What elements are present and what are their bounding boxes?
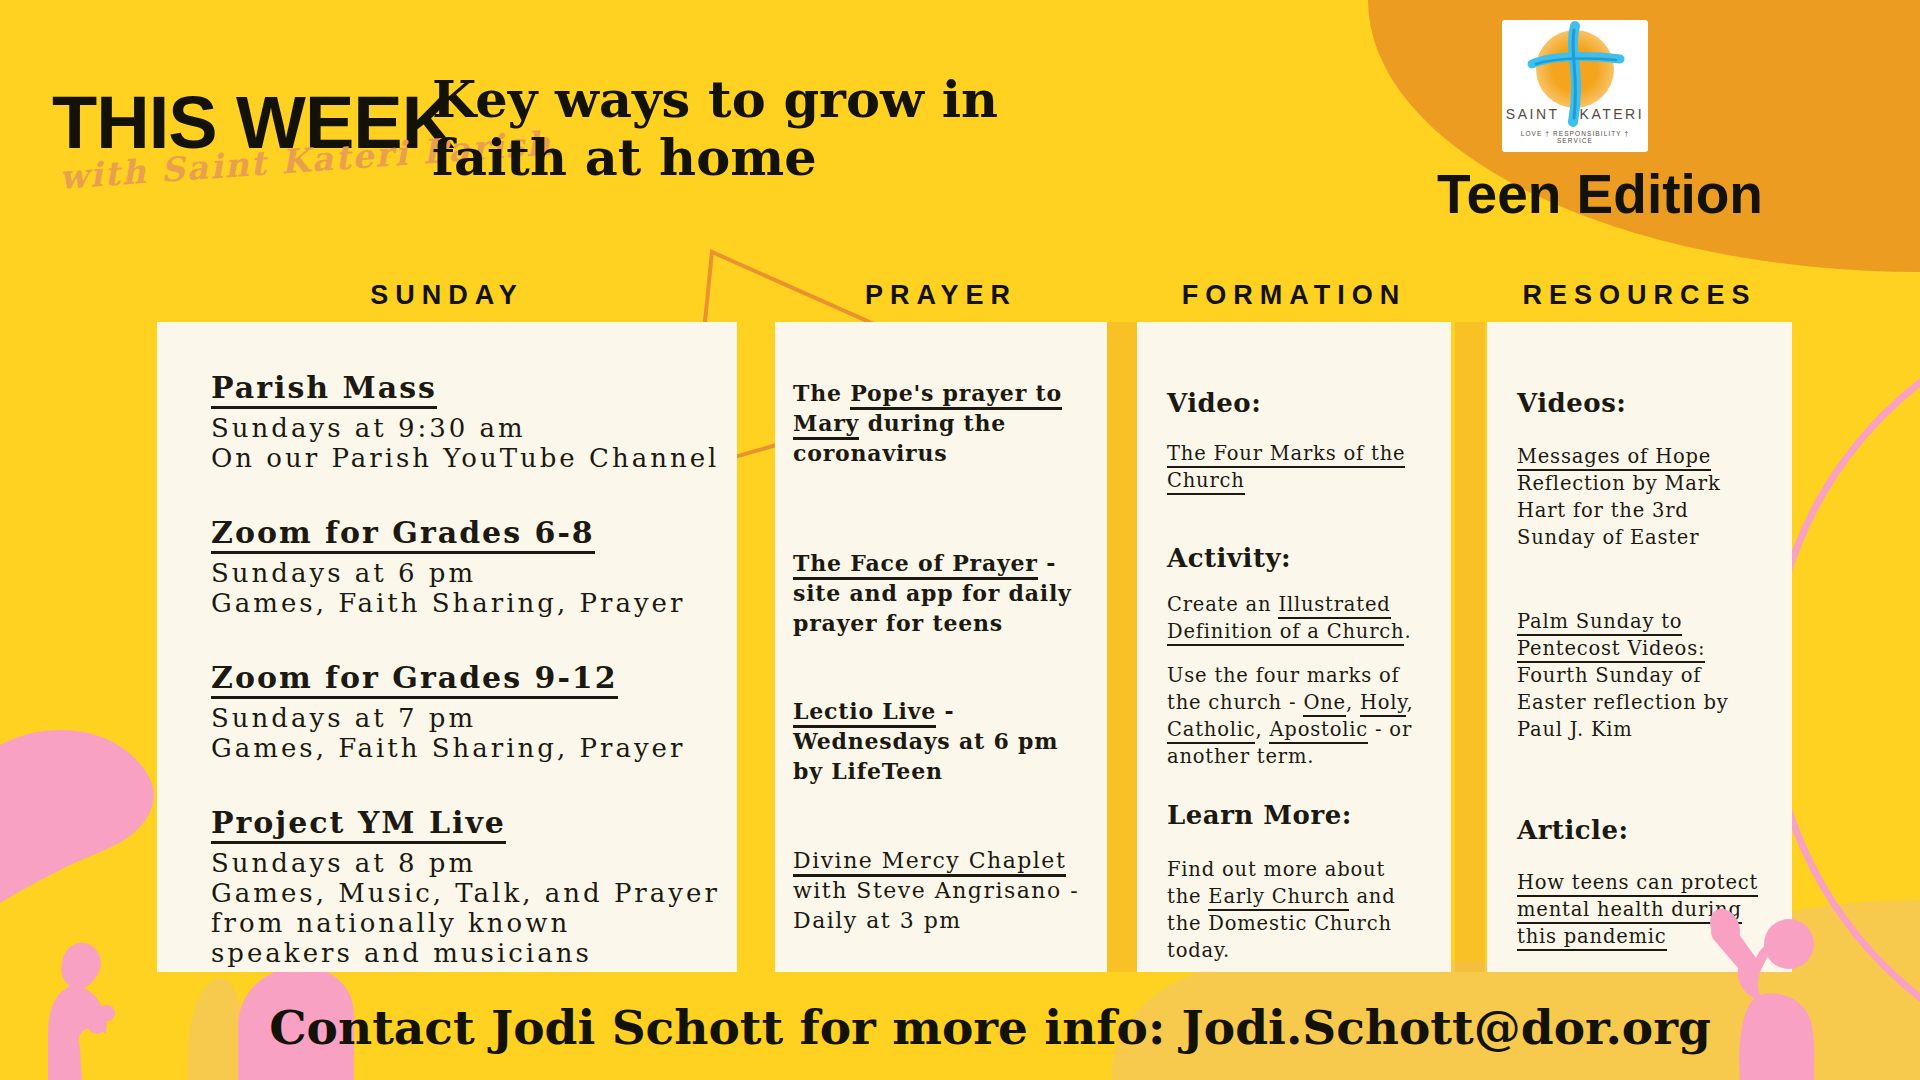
logo-name-right: KATERI [1580,106,1645,122]
link-underlined-text[interactable]: Messages of Hope [1517,445,1711,471]
schedule-item-title: Parish Mass [211,370,707,406]
link-underlined-text[interactable]: One [1303,691,1346,717]
link-underlined-text[interactable]: Divine Mercy Chaplet [793,848,1066,877]
parish-logo: SAINT KATERI LOVE † RESPONSIBILITY † SER… [1502,20,1648,152]
schedule-item: Zoom for Grades 9-12 Sundays at 7 pm Gam… [211,660,707,763]
schedule-item: Parish Mass Sundays at 9:30 am On our Pa… [211,370,707,473]
section-heading: Activity: [1167,541,1433,575]
plain-text: Create an [1167,593,1278,616]
plain-text: Reflection by Mark Hart for the 3rd Sund… [1517,472,1721,549]
logo-motto: LOVE † RESPONSIBILITY † SERVICE [1502,130,1648,144]
link-underlined-text[interactable]: Zoom for Grades 6-8 [211,515,595,554]
schedule-item: Project YM Live Sundays at 8 pm Games, M… [211,805,707,968]
formation-item: Find out more about the Early Church and… [1167,856,1433,964]
plain-text: with Steve Angrisano - Daily at 3 pm [793,878,1079,933]
plain-text: . [1404,620,1411,643]
plain-text: The [793,380,850,406]
link-underlined-text[interactable]: Zoom for Grades 9-12 [211,660,618,699]
link-underlined-text[interactable]: Lectio Live [793,698,936,728]
column-header-formation: FORMATION [1137,280,1451,311]
link-underlined-text[interactable]: Project YM Live [211,805,506,844]
schedule-item: Zoom for Grades 6-8 Sundays at 6 pm Game… [211,515,707,618]
link-underlined-text[interactable]: The Face of Prayer [793,550,1038,580]
column-header-prayer: PRAYER [775,280,1107,311]
schedule-item-details: Sundays at 6 pm Games, Faith Sharing, Pr… [211,558,707,618]
link-underlined-text[interactable]: The Four Marks of the Church [1167,442,1405,495]
section-heading: Learn More: [1167,798,1433,832]
link-underlined-text[interactable]: Apostolic [1269,718,1367,744]
prayer-item: Lectio Live - Wednesdays at 6 pm by Life… [793,696,1089,786]
section-heading: Video: [1167,386,1433,420]
resource-item: Palm Sunday to Pentecost Videos: Fourth … [1517,608,1776,743]
formation-item: Create an Illustrated Definition of a Ch… [1167,591,1433,645]
prayer-card: The Pope's prayer to Mary during the cor… [775,322,1107,972]
formation-item: The Four Marks of the Church [1167,440,1433,494]
plain-text: , [1255,718,1269,741]
schedule-item-title: Project YM Live [211,805,707,841]
pink-wave-band [0,730,154,903]
plain-text: Fourth Sunday of Easter reflection by Pa… [1517,664,1729,741]
plain-text: , [1346,691,1360,714]
link-underlined-text[interactable]: Holy [1360,691,1407,717]
column-header-resources: RESOURCES [1487,280,1792,311]
contact-footer: Contact Jodi Schott for more info: Jodi.… [30,1000,1920,1055]
resources-card: Videos: Messages of Hope Reflection by M… [1487,322,1792,972]
column-header-sunday: SUNDAY [157,280,737,311]
link-underlined-text[interactable]: Palm Sunday to Pentecost Videos: [1517,610,1705,663]
schedule-item-title: Zoom for Grades 9-12 [211,660,707,696]
section-heading: Videos: [1517,386,1776,420]
edition-label: Teen Edition [1400,162,1800,226]
sunday-card: Parish Mass Sundays at 9:30 am On our Pa… [157,322,737,972]
tagline: Key ways to grow in faith at home [432,70,998,186]
resource-item: Messages of Hope Reflection by Mark Hart… [1517,443,1776,551]
formation-item: Use the four marks of the church - One, … [1167,662,1433,770]
plain-text: , [1406,691,1413,714]
schedule-item-details: Sundays at 8 pm Games, Music, Talk, and … [211,848,707,968]
prayer-item: The Face of Prayer - site and app for da… [793,548,1089,638]
link-underlined-text[interactable]: Catholic [1167,718,1255,744]
prayer-item: Divine Mercy Chaplet with Steve Angrisan… [793,846,1089,936]
logo-wordmark: SAINT KATERI [1502,106,1648,122]
flyer-page: THIS WEEK with Saint Kateri Parish Key w… [0,0,1920,1080]
link-underlined-text[interactable]: Early Church [1208,885,1349,911]
section-heading: Article: [1517,813,1776,847]
schedule-item-details: Sundays at 7 pm Games, Faith Sharing, Pr… [211,703,707,763]
schedule-item-title: Zoom for Grades 6-8 [211,515,707,551]
logo-name-left: SAINT [1506,106,1560,122]
prayer-item: The Pope's prayer to Mary during the cor… [793,378,1089,468]
link-underlined-text[interactable]: Parish Mass [211,370,437,409]
schedule-item-details: Sundays at 9:30 am On our Parish YouTube… [211,413,707,473]
formation-card: Video: The Four Marks of the Church Acti… [1137,322,1451,972]
